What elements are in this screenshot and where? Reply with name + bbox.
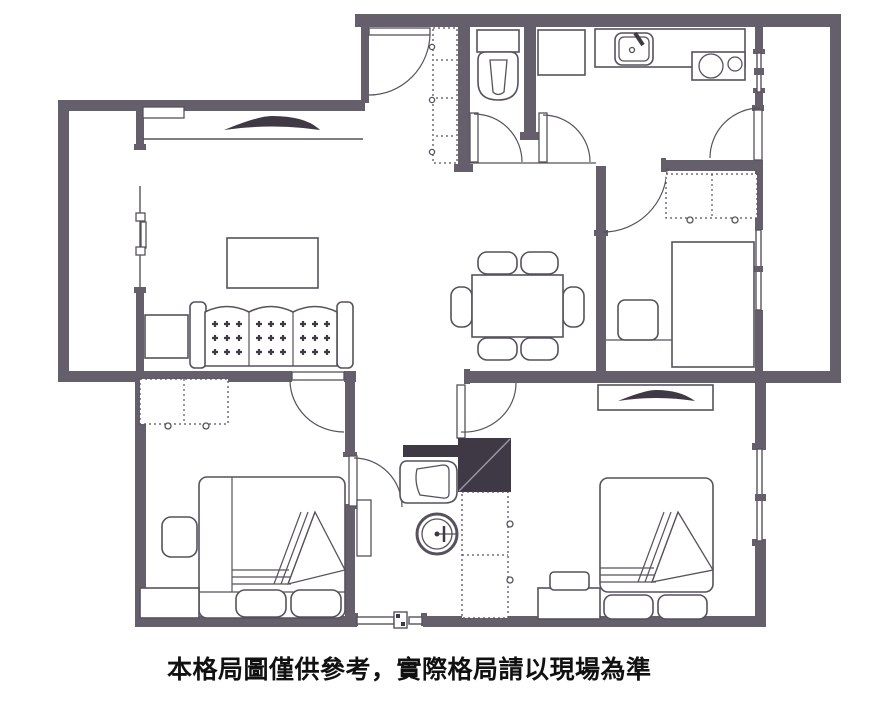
pillow (658, 595, 707, 619)
wc-room (477, 30, 519, 100)
bedroom2-door-arc (461, 383, 516, 432)
toilet-seat (416, 465, 449, 498)
wall-cap (464, 369, 470, 384)
bedroom-right (606, 174, 757, 367)
window-bath-bottom-a (357, 617, 394, 624)
coffee-table (227, 238, 318, 288)
balcony-cabinet (143, 107, 184, 118)
bathroom-door-leaf (349, 456, 357, 506)
window-node (754, 68, 764, 75)
dining-table (472, 275, 563, 337)
sofa-armrest-right (337, 302, 353, 368)
living-room (145, 238, 353, 368)
bedroom3-door-arc (603, 168, 667, 232)
nightstand-cushion (550, 572, 589, 590)
dining-chair (451, 287, 472, 327)
partition-node (136, 247, 145, 255)
wall-entry-stub (361, 27, 369, 103)
dining-chair (478, 338, 517, 360)
wall-top (355, 14, 841, 27)
wall-cap (454, 164, 473, 172)
kitchen-door-arc (543, 115, 590, 162)
wall-bedroom3-top (665, 160, 757, 171)
kitchen-cabinet (538, 30, 585, 75)
dining-chair (478, 252, 517, 274)
wc-door-leaf (470, 113, 478, 162)
nightstand (538, 588, 600, 619)
toilet-tank (477, 30, 519, 52)
bedroom1-door-arc (290, 380, 344, 432)
partition-handle (141, 222, 146, 248)
entry-door-leaf (369, 28, 430, 35)
wardrobe-knob (687, 217, 693, 223)
balcony-door-arc (710, 108, 760, 158)
wall-cap (134, 287, 146, 293)
burner-large (699, 54, 723, 78)
pillow (236, 590, 286, 617)
wall-cap (594, 230, 608, 236)
sink-drain (630, 48, 635, 53)
window-connector (394, 612, 407, 628)
wall-bathroom-left-lower (345, 506, 355, 616)
wall-cap (134, 144, 146, 150)
wall-wc-left (458, 27, 470, 172)
kitchen-door-leaf (539, 113, 547, 162)
cabinet-knob (429, 149, 434, 154)
wc-door-arc (474, 114, 522, 162)
wall-bedroom2-right-upper (755, 383, 766, 449)
wall-bedroom2-top (466, 371, 840, 383)
single-bed (672, 242, 754, 367)
wall-cap (661, 158, 666, 172)
dining-chair (521, 338, 558, 360)
toilet-seat (490, 60, 507, 95)
low-cabinet (140, 588, 199, 618)
wardrobe-knob (165, 423, 171, 429)
wall-left-outer (58, 100, 69, 382)
pillow (604, 595, 653, 619)
shoe-cabinet (433, 28, 457, 163)
bath-panel (357, 500, 371, 556)
kitchen (538, 29, 745, 80)
partition-node (136, 213, 145, 221)
wall-wc-right (524, 27, 536, 140)
wall-bathroom-left-upper (345, 382, 355, 457)
wardrobe-knob (507, 577, 513, 583)
wall-bedroom3-right-b (755, 310, 763, 373)
disclaimer-text: 本格局圖僅供參考，實際格局請以現場為準 (167, 650, 652, 686)
bedroom1-door-leaf (292, 372, 344, 380)
dining-chair (521, 252, 558, 274)
wardrobe-knob (732, 217, 738, 223)
cabinet-knob (429, 97, 434, 102)
bedroom-bottom-left (140, 379, 345, 618)
sofa-armrest-left (190, 302, 206, 368)
entry-door-arc (369, 33, 430, 95)
bedroom-bottom-right (462, 385, 713, 619)
wall-bedroom2-right-lower (755, 541, 766, 627)
window-mullion (755, 494, 766, 501)
wall-right-outer (830, 14, 841, 383)
basin-drain (435, 532, 440, 537)
bedside-stool (162, 517, 197, 557)
floor-plan-page: 本格局圖僅供參考，實際格局請以現場為準 (0, 0, 889, 707)
wardrobe-knob (507, 521, 513, 527)
nightstand (618, 300, 658, 340)
balcony-planter (224, 116, 320, 130)
partition-stub-bottom (136, 290, 144, 372)
window-connector-dot (401, 622, 405, 626)
dining-chair (563, 287, 584, 327)
window-bath-bottom-b (409, 617, 422, 624)
window-connector-dot (396, 614, 400, 618)
bedroom2-door-leaf (457, 385, 465, 438)
balcony-door-leaf (754, 110, 762, 160)
dining-area (451, 252, 584, 360)
wall-living-bottom-b (344, 371, 356, 382)
burner-small (728, 57, 742, 71)
toilet-tank (403, 445, 458, 457)
side-table (145, 315, 188, 358)
wall-cap (520, 132, 539, 140)
floor-plan-drawing (0, 0, 889, 707)
entry-cabinet (429, 28, 457, 163)
wall-bedroom3-left (596, 166, 606, 372)
wardrobe-knob (203, 423, 209, 429)
cabinet-knob (429, 44, 434, 49)
wall-top-left (58, 100, 365, 111)
pillow (291, 590, 341, 617)
